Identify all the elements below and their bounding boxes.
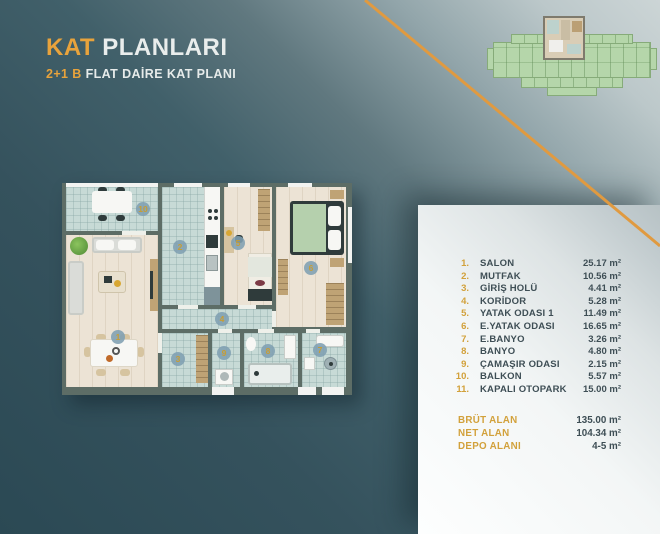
coffee-table [98,271,126,293]
bed-pillow [255,280,265,286]
legend-name: ÇAMAŞIR ODASI [480,359,588,370]
coffee-table-decor [104,276,112,283]
legend-num: 9. [445,359,469,370]
table-decor [106,355,113,362]
key-plan-unit-room [567,44,581,54]
dining-chair [96,369,106,376]
room-badge-e-banyo: 7 [313,343,327,357]
legend-name: KORİDOR [480,296,588,307]
door-salon [158,333,162,353]
plant-icon [70,237,88,255]
legend-row: 4.KORİDOR5.28 m² [445,296,621,309]
key-plan-tip-right [650,48,657,70]
summary-row: NET ALAN104.34 m² [445,428,621,441]
legend-area: 4.41 m² [588,283,621,294]
sofa [68,261,84,315]
legend-name: KAPALI OTOPARK [480,384,583,395]
oven [206,235,218,248]
legend-num: 10. [445,371,469,382]
summary-value: 135.00 m² [576,415,621,426]
legend-num: 11. [445,384,469,395]
area-summary: BRÜT ALAN135.00 m² NET ALAN104.34 m² DEP… [445,415,621,455]
kitchen-sink [206,255,218,271]
legend-area: 25.17 m² [583,258,621,269]
legend-name: GİRİŞ HOLÜ [480,283,588,294]
page-subtitle: 2+1 B FLAT DAİRE KAT PLANI [46,67,236,81]
window [298,387,316,395]
bathtub-drain [254,371,259,376]
subtitle-accent: 2+1 B [46,67,82,81]
legend-name: E.YATAK ODASI [480,321,583,332]
door-banyo [258,329,274,333]
bed-pillow [328,230,341,250]
info-panel: 1.SALON25.17 m² 2.MUTFAK10.56 m² 3.GİRİŞ… [418,205,660,534]
toilet [246,337,256,351]
stove-burner [208,216,212,220]
washing-machine-door [220,372,229,381]
legend-area: 5.28 m² [588,296,621,307]
key-plan-unit-room [572,21,582,32]
window [212,387,234,395]
summary-label: NET ALAN [445,428,576,439]
stove-burner [208,209,212,213]
window [348,207,352,263]
floor-plan: 1 2 3 4 5 6 7 8 9 10 [62,183,352,395]
dining-chair [120,369,130,376]
door-camasir [218,329,232,333]
legend-name: SALON [480,258,583,269]
summary-label: DEPO ALANI [445,441,592,452]
key-plan-tip-left [487,48,494,70]
legend-area: 5.57 m² [588,371,621,382]
room-badge-balkon: 10 [136,202,150,216]
balcony-railing [66,183,158,187]
window [322,387,344,395]
page: KAT PLANLARI 2+1 B FLAT DAİRE KAT PLANI … [0,0,660,534]
nightstand [330,258,344,267]
summary-value: 104.34 m² [576,428,621,439]
room-badge-camasir: 9 [217,346,231,360]
summary-row: BRÜT ALAN135.00 m² [445,415,621,428]
legend-area: 15.00 m² [583,384,621,395]
room-badge-koridor: 4 [215,312,229,326]
window [174,183,202,187]
sofa-cushion [96,240,114,250]
summary-value: 4-5 m² [592,441,621,452]
legend-area: 11.49 m² [584,308,622,319]
room-badge-giris-holu: 3 [171,352,185,366]
legend-row: 2.MUTFAK10.56 m² [445,271,621,284]
legend-name: BALKON [480,371,588,382]
sofa-cushion [118,240,136,250]
legend-row: 5.YATAK ODASI 111.49 m² [445,308,621,321]
coffee-table-decor [114,280,121,287]
room-badge-e-yatak: 6 [304,261,318,275]
wardrobe [326,283,344,325]
balcony-chair [116,215,125,221]
window [228,183,250,187]
key-plan-unit-balcony [547,20,559,34]
legend-num: 2. [445,271,469,282]
legend-num: 4. [445,296,469,307]
bed-duvet [248,257,272,277]
legend-row: 9.ÇAMAŞIR ODASI2.15 m² [445,359,621,372]
balcony-dining-table [92,191,132,213]
door-e-yatak-odasi [272,311,276,327]
door-mutfak [178,305,198,309]
key-plan-unit-room [549,40,563,52]
legend-name: YATAK ODASI 1 [480,308,584,319]
window [288,183,312,187]
room-badge-mutfak: 2 [173,240,187,254]
legend-num: 3. [445,283,469,294]
door-balcony [122,231,146,235]
legend-area: 10.56 m² [583,271,621,282]
legend-row: 11.KAPALI OTOPARK15.00 m² [445,384,621,397]
title-rest: PLANLARI [102,34,227,61]
legend-row: 1.SALON25.17 m² [445,258,621,271]
balcony-chair [98,215,107,221]
subtitle-rest: FLAT DAİRE KAT PLANI [86,67,237,81]
bed-pillow [328,206,341,226]
wardrobe [258,189,270,231]
hall-cabinet [196,335,208,383]
page-title: KAT PLANLARI [46,34,236,62]
key-plan-unit-room [561,20,570,40]
legend-num: 6. [445,321,469,332]
stove-burner [214,209,218,213]
legend-area: 2.15 m² [588,359,621,370]
legend-name: E.BANYO [480,334,588,345]
legend-name: MUTFAK [480,271,583,282]
legend-row: 10.BALKON5.57 m² [445,371,621,384]
toilet [304,357,315,370]
legend-row: 7.E.BANYO3.26 m² [445,334,621,347]
nightstand [330,190,344,199]
legend-num: 8. [445,346,469,357]
room-legend: 1.SALON25.17 m² 2.MUTFAK10.56 m² 3.GİRİŞ… [445,258,621,397]
sink-drain [329,362,333,366]
desk-lamp [226,230,232,236]
key-plan-highlighted-unit [543,16,585,60]
page-header: KAT PLANLARI 2+1 B FLAT DAİRE KAT PLANI [46,34,236,81]
door-e-banyo [306,329,320,333]
bathroom-sink [284,335,296,359]
tv-icon [150,271,153,299]
legend-row: 8.BANYO4.80 m² [445,346,621,359]
room-badge-banyo: 8 [261,344,275,358]
fridge [204,287,220,305]
stove-burner [214,216,218,220]
bed-footboard [248,289,272,301]
summary-row: DEPO ALANI4-5 m² [445,441,621,454]
legend-num: 5. [445,308,469,319]
legend-area: 16.65 m² [583,321,621,332]
legend-num: 1. [445,258,469,269]
legend-area: 3.26 m² [588,334,621,345]
table-decor [112,347,120,355]
dining-chair [137,347,144,357]
room-badge-yatak-odasi: 5 [231,236,245,250]
title-accent: KAT [46,34,95,61]
room-badge-salon: 1 [111,330,125,344]
wardrobe [278,259,288,295]
legend-row: 6.E.YATAK ODASI16.65 m² [445,321,621,334]
legend-row: 3.GİRİŞ HOLÜ4.41 m² [445,283,621,296]
building-key-plan [487,14,657,104]
summary-label: BRÜT ALAN [445,415,576,426]
legend-name: BANYO [480,346,588,357]
legend-area: 4.80 m² [588,346,621,357]
key-plan-wing-bottom-small [547,87,597,96]
door-yatak-odasi [238,305,256,309]
double-bed-duvet [293,204,326,252]
legend-num: 7. [445,334,469,345]
